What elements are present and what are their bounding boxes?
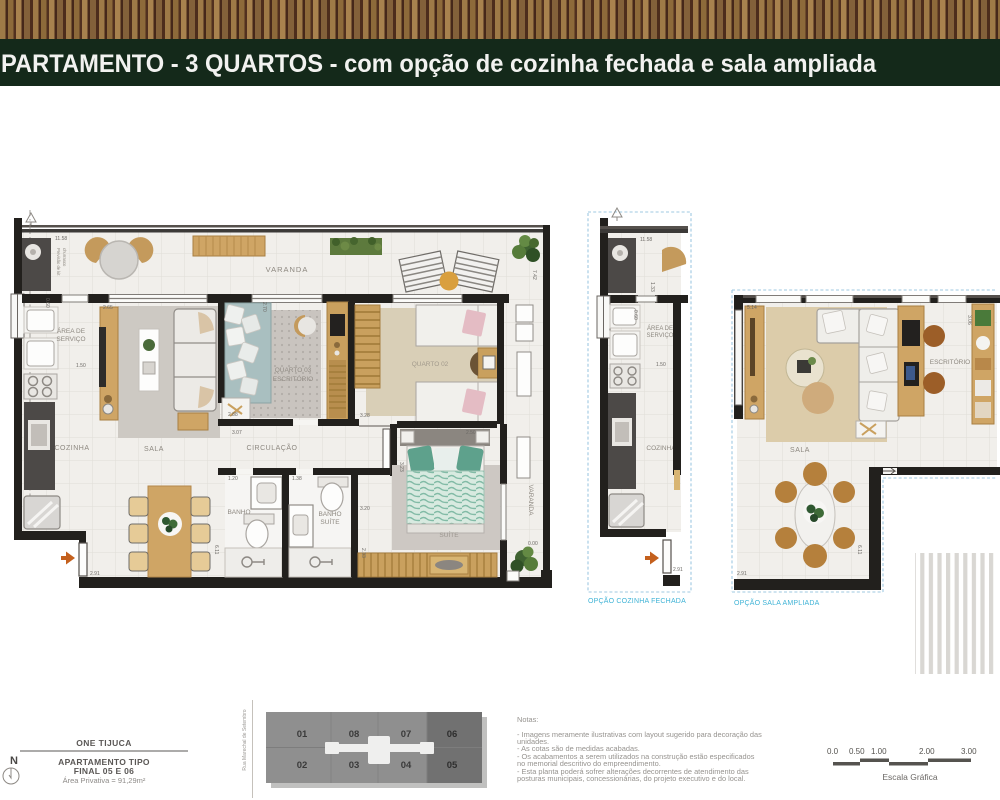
- svg-text:3.28: 3.28: [360, 413, 370, 419]
- svg-text:1.00: 1.00: [871, 747, 887, 756]
- svg-text:2.70: 2.70: [261, 302, 267, 312]
- svg-text:2.50: 2.50: [466, 430, 476, 436]
- svg-text:2.00: 2.00: [919, 747, 935, 756]
- svg-text:7.42: 7.42: [531, 270, 537, 280]
- svg-text:3.07: 3.07: [232, 430, 242, 436]
- svg-text:OPÇÃO COZINHA FECHADA: OPÇÃO COZINHA FECHADA: [588, 596, 686, 605]
- svg-text:0.60: 0.60: [632, 310, 638, 320]
- svg-text:05: 05: [447, 760, 458, 771]
- svg-text:QUARTO 03: QUARTO 03: [275, 367, 312, 374]
- svg-text:1.50: 1.50: [76, 363, 86, 369]
- svg-text:01: 01: [297, 729, 308, 740]
- svg-text:1.50: 1.50: [656, 362, 666, 368]
- svg-text:PARTAMENTO - 3 QUARTOS - com o: PARTAMENTO - 3 QUARTOS - com opção de co…: [1, 50, 877, 78]
- svg-text:SALA: SALA: [790, 447, 810, 454]
- svg-text:0.50: 0.50: [849, 747, 865, 756]
- svg-text:Escala Gráfica: Escala Gráfica: [882, 772, 938, 782]
- svg-text:Rua Marechal de Setembro: Rua Marechal de Setembro: [242, 709, 248, 770]
- svg-text:- Imagens meramente ilustrativ: - Imagens meramente ilustrativas com lay…: [517, 730, 762, 739]
- svg-text:Área Privativa = 91,29m²: Área Privativa = 91,29m²: [63, 776, 146, 785]
- svg-text:QUARTO 02: QUARTO 02: [412, 361, 449, 368]
- svg-text:11.58: 11.58: [640, 237, 652, 243]
- svg-text:FINAL 05 E 06: FINAL 05 E 06: [74, 766, 134, 776]
- svg-text:06: 06: [447, 729, 458, 740]
- svg-text:ÁREA DE: ÁREA DE: [57, 326, 86, 335]
- svg-text:posturas municipais, concessio: posturas municipais, concessionárias, do…: [517, 774, 745, 783]
- svg-text:0.60: 0.60: [44, 298, 50, 308]
- svg-text:0.0: 0.0: [827, 747, 839, 756]
- svg-text:0.00: 0.00: [528, 541, 538, 547]
- svg-text:1.33: 1.33: [649, 282, 655, 292]
- svg-text:churrasco: churrasco: [62, 248, 67, 267]
- svg-text:ONE TIJUCA: ONE TIJUCA: [76, 738, 131, 748]
- svg-text:2.88: 2.88: [228, 412, 238, 418]
- svg-text:3.23: 3.23: [398, 462, 404, 472]
- svg-text:2.91: 2.91: [737, 571, 747, 577]
- svg-text:COZINHA: COZINHA: [55, 445, 90, 452]
- svg-text:2.91: 2.91: [90, 571, 100, 577]
- svg-text:SUÍTE: SUÍTE: [320, 517, 340, 526]
- svg-text:BANHO: BANHO: [318, 511, 341, 518]
- svg-text:ÁREA DE: ÁREA DE: [647, 325, 673, 332]
- svg-text:1.20: 1.20: [228, 476, 238, 482]
- svg-text:Notas:: Notas:: [517, 715, 538, 724]
- svg-text:VARANDA: VARANDA: [527, 485, 534, 517]
- svg-text:07: 07: [401, 729, 412, 740]
- svg-text:6.11: 6.11: [856, 545, 862, 555]
- svg-text:N: N: [10, 755, 18, 767]
- svg-text:CIRCULAÇÃO: CIRCULAÇÃO: [247, 443, 298, 452]
- svg-text:OPÇÃO SALA AMPLIADA: OPÇÃO SALA AMPLIADA: [734, 598, 820, 607]
- svg-text:2.33: 2.33: [360, 548, 366, 558]
- svg-text:3.06: 3.06: [966, 315, 972, 325]
- svg-text:COZINHA: COZINHA: [646, 445, 676, 452]
- svg-text:6.11: 6.11: [213, 545, 219, 555]
- svg-text:08: 08: [349, 729, 360, 740]
- svg-text:02: 02: [297, 760, 308, 771]
- svg-text:1.38: 1.38: [292, 476, 302, 482]
- svg-text:SUÍTE: SUÍTE: [439, 530, 459, 539]
- svg-text:11.58: 11.58: [55, 236, 67, 242]
- svg-text:04: 04: [401, 760, 412, 771]
- svg-text:3.20: 3.20: [360, 506, 370, 512]
- svg-text:5.14: 5.14: [747, 305, 757, 311]
- svg-text:2.91: 2.91: [673, 567, 683, 573]
- svg-text:VARANDA: VARANDA: [266, 265, 309, 274]
- svg-text:ESCRITÓRIO: ESCRITÓRIO: [273, 374, 313, 383]
- svg-text:SERVIÇO: SERVIÇO: [647, 333, 674, 339]
- svg-text:03: 03: [349, 760, 360, 771]
- svg-text:SERVIÇO: SERVIÇO: [56, 336, 85, 343]
- svg-text:Previsão de kit: Previsão de kit: [56, 248, 61, 276]
- svg-text:3.00: 3.00: [961, 747, 977, 756]
- svg-text:ESCRITÓRIO: ESCRITÓRIO: [930, 357, 970, 366]
- svg-text:2.65: 2.65: [103, 305, 113, 311]
- svg-text:SALA: SALA: [144, 446, 164, 453]
